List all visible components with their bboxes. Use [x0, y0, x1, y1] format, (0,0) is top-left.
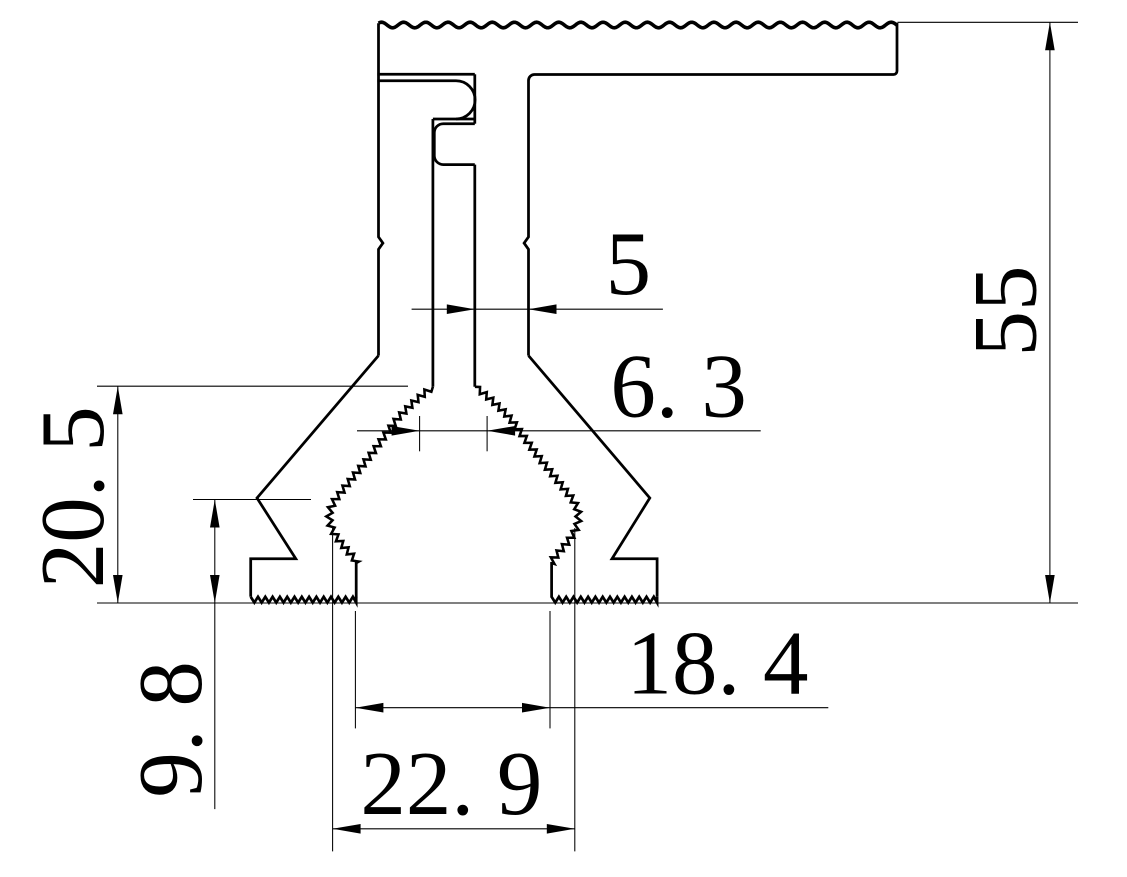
svg-text:55: 55	[955, 266, 1056, 357]
svg-text:20. 5: 20. 5	[22, 406, 123, 588]
svg-text:5: 5	[606, 213, 652, 314]
svg-text:18. 4: 18. 4	[627, 613, 809, 714]
svg-text:6. 3: 6. 3	[610, 336, 747, 437]
svg-text:9. 8: 9. 8	[120, 661, 221, 798]
svg-text:22. 9: 22. 9	[360, 733, 542, 834]
